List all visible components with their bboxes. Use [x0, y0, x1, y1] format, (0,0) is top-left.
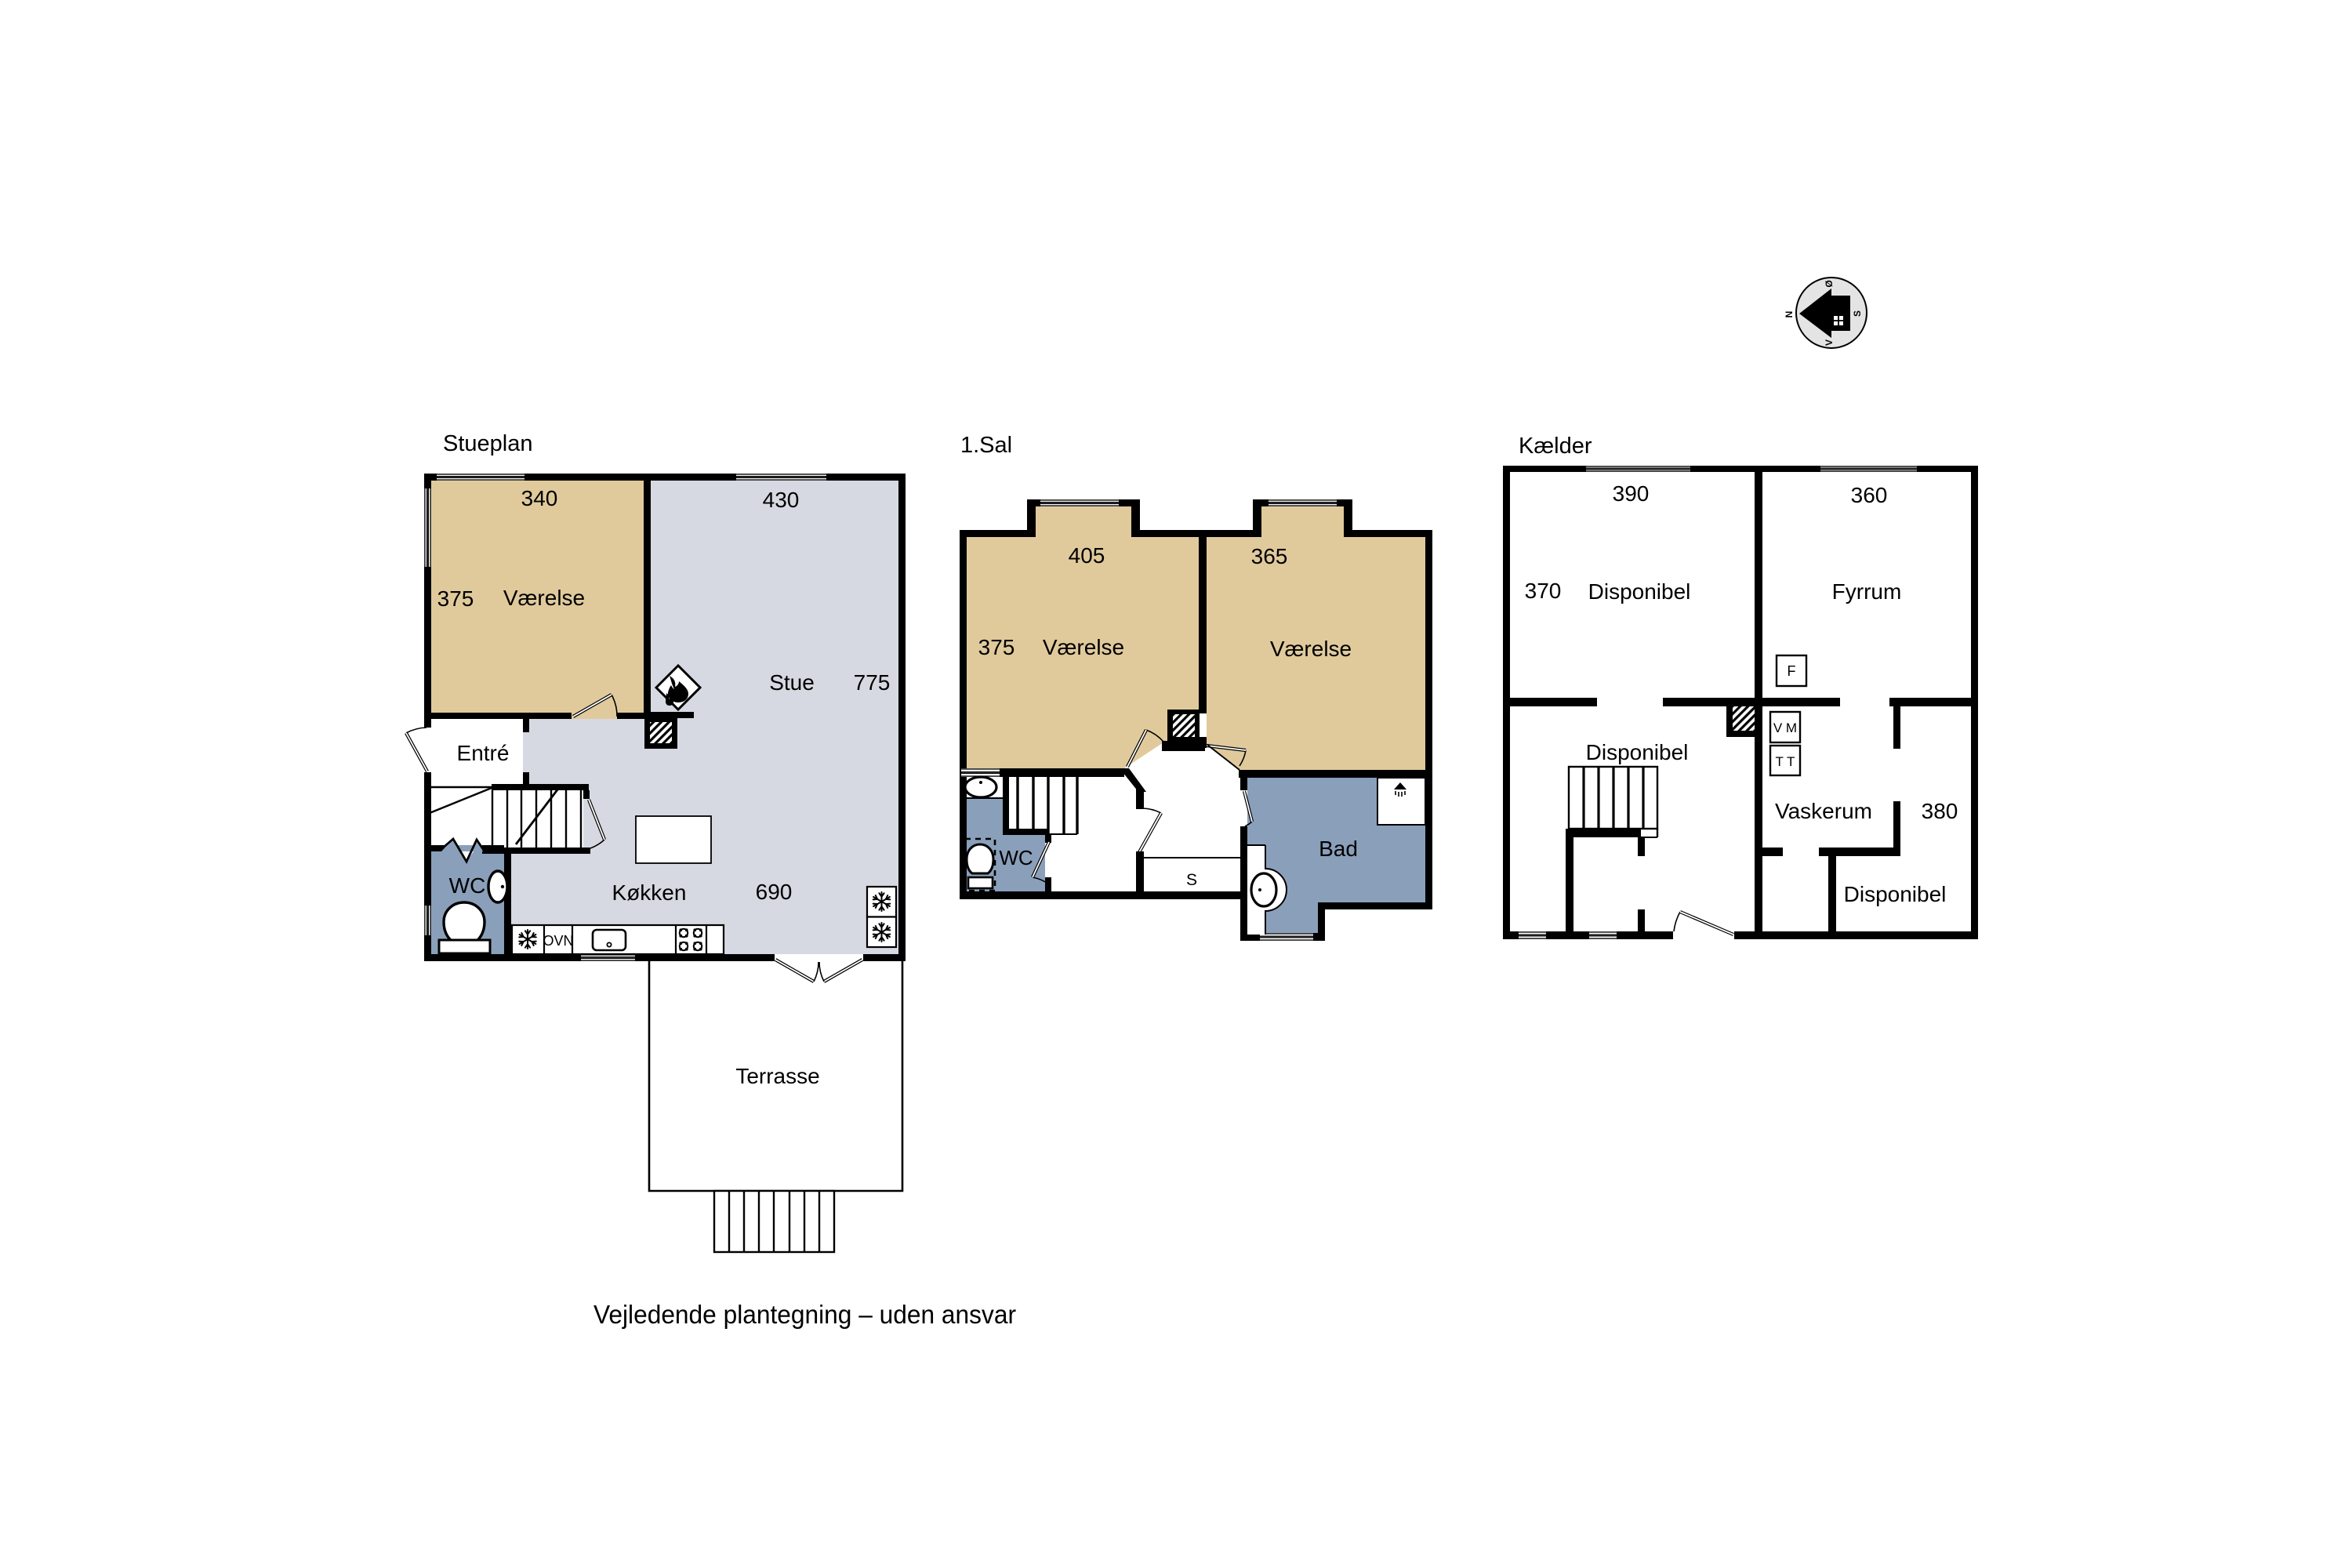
svg-text:V: V: [1824, 339, 1835, 346]
svg-text:Værelse: Værelse: [1043, 635, 1124, 659]
svg-text:Stue: Stue: [769, 670, 815, 695]
svg-text:Disponibel: Disponibel: [1844, 882, 1947, 906]
svg-text:Værelse: Værelse: [503, 586, 585, 610]
svg-text:360: 360: [1851, 483, 1888, 507]
svg-text:WC: WC: [449, 873, 486, 898]
svg-text:Vejledende plantegning – uden: Vejledende plantegning – uden ansvar: [593, 1300, 1016, 1329]
svg-text:Vaskerum: Vaskerum: [1775, 799, 1872, 823]
svg-text:380: 380: [1922, 799, 1958, 823]
svg-text:Disponibel: Disponibel: [1588, 579, 1691, 604]
svg-text:365: 365: [1251, 544, 1288, 568]
svg-text:S: S: [1852, 310, 1863, 317]
svg-text:Fyrrum: Fyrrum: [1832, 579, 1902, 604]
svg-text:V M: V M: [1773, 720, 1797, 735]
svg-text:375: 375: [437, 586, 474, 611]
svg-text:Stueplan: Stueplan: [443, 431, 533, 456]
svg-text:370: 370: [1525, 579, 1562, 603]
svg-text:Bad: Bad: [1319, 837, 1358, 861]
svg-text:Værelse: Værelse: [1270, 637, 1352, 661]
svg-text:S: S: [1186, 871, 1197, 889]
svg-text:OVN: OVN: [543, 933, 573, 949]
svg-text:Kælder: Kælder: [1519, 434, 1592, 459]
svg-text:1.Sal: 1.Sal: [960, 433, 1012, 458]
svg-text:690: 690: [756, 880, 793, 904]
svg-text:405: 405: [1069, 543, 1105, 568]
svg-text:F: F: [1788, 663, 1796, 679]
svg-text:Entré: Entré: [457, 741, 510, 765]
svg-text:N: N: [1784, 311, 1795, 318]
svg-text:375: 375: [978, 635, 1015, 659]
svg-text:Terrasse: Terrasse: [735, 1064, 819, 1088]
svg-text:340: 340: [521, 486, 558, 510]
svg-text:Disponibel: Disponibel: [1586, 740, 1689, 764]
svg-text:390: 390: [1613, 481, 1650, 506]
svg-text:Køkken: Køkken: [612, 880, 687, 905]
svg-text:775: 775: [854, 670, 891, 695]
svg-text:T T: T T: [1776, 754, 1795, 769]
svg-text:Ø: Ø: [1824, 280, 1835, 287]
svg-text:430: 430: [763, 488, 800, 512]
svg-text:WC: WC: [999, 846, 1033, 869]
